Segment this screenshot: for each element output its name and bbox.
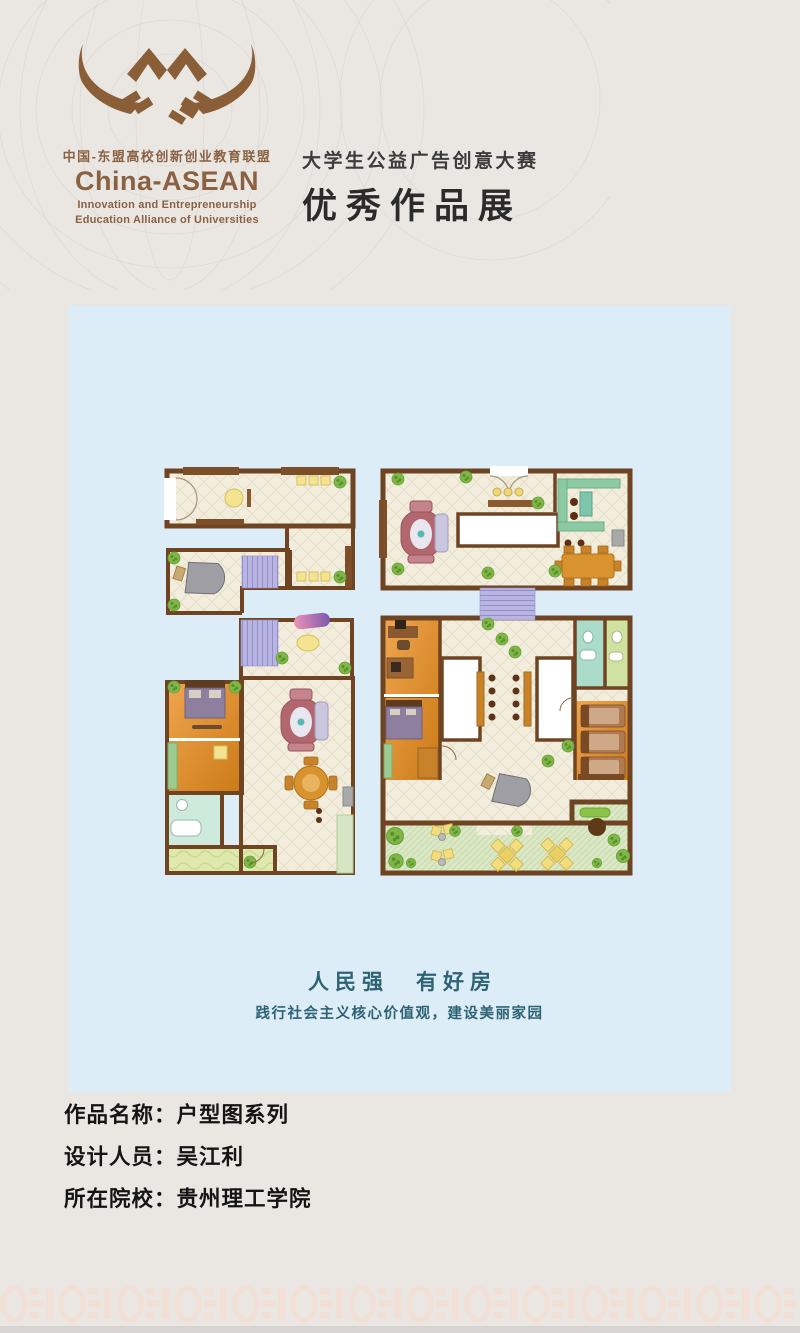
alliance-name-en: China-ASEAN — [56, 166, 278, 197]
event-title-block: 大学生公益广告创意大赛 优秀作品展 — [302, 146, 539, 229]
artwork-title-value: 户型图系列 — [177, 1103, 290, 1127]
alliance-sub-line1: Innovation and Entrepreneurship — [56, 199, 278, 212]
artwork-title-label: 作品名称： — [64, 1103, 177, 1127]
event-title: 大学生公益广告创意大赛 — [302, 146, 539, 173]
right-floorplan — [379, 466, 630, 880]
artwork-info-block: 作品名称：户型图系列 设计人员：吴江利 所在院校：贵州理工学院 — [64, 1098, 312, 1224]
event-subtitle: 优秀作品展 — [302, 178, 539, 229]
poster-panel: 人民强 有好房 践行社会主义核心价值观，建设美丽家园 — [68, 306, 731, 1092]
school-label: 所在院校： — [64, 1187, 177, 1211]
slogan-sub: 践行社会主义核心价值观，建设美丽家园 — [68, 1002, 731, 1023]
school-value: 贵州理工学院 — [177, 1187, 312, 1211]
bottom-motif-strip — [0, 1282, 800, 1326]
alliance-logo-block: 中国-东盟高校创新创业教育联盟 China-ASEAN Innovation a… — [56, 38, 278, 228]
left-floorplan — [164, 467, 353, 873]
alliance-emblem-icon — [69, 38, 265, 134]
slogan-main: 人民强 有好房 — [68, 966, 731, 996]
designer-row: 设计人员：吴江利 — [64, 1140, 312, 1171]
motif-pattern — [0, 1282, 800, 1326]
designer-value: 吴江利 — [177, 1145, 245, 1169]
alliance-sub-line2: Education Alliance of Universities — [56, 214, 278, 227]
school-row: 所在院校：贵州理工学院 — [64, 1182, 312, 1213]
alliance-name-cn: 中国-东盟高校创新创业教育联盟 — [56, 146, 278, 165]
poster-page: 中国-东盟高校创新创业教育联盟 China-ASEAN Innovation a… — [0, 0, 800, 1333]
bottom-edge-bar — [0, 1326, 800, 1333]
designer-label: 设计人员： — [64, 1145, 177, 1169]
artwork-title-row: 作品名称：户型图系列 — [64, 1098, 312, 1129]
